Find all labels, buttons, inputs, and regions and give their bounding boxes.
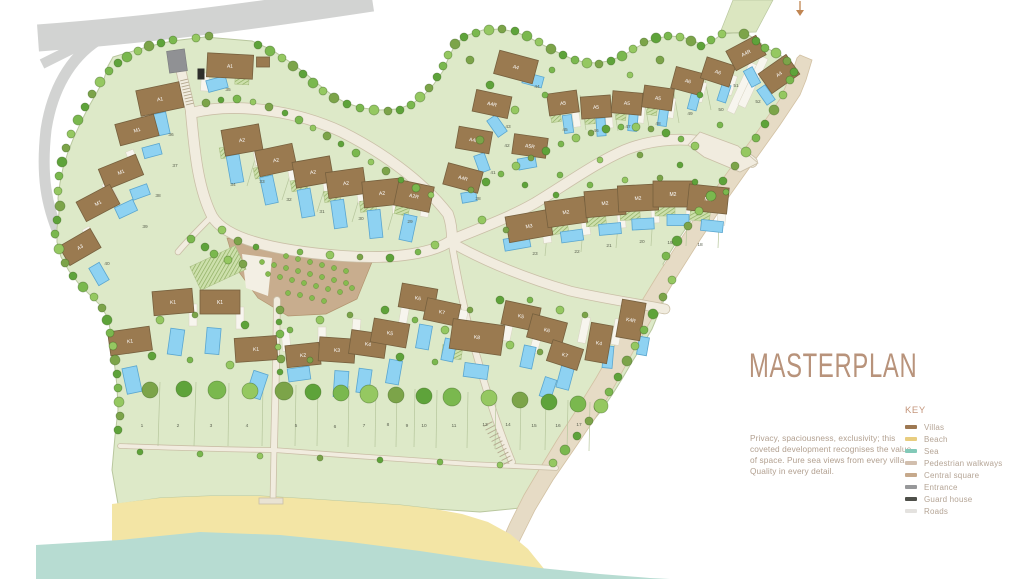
tree-icon [134,47,142,55]
tree-icon [686,36,696,46]
tree-icon [382,167,390,175]
tree-icon [51,230,59,238]
tree-icon [676,33,684,41]
guard-house [198,69,205,80]
tree-icon [560,445,570,455]
entrance-arrow [796,1,804,16]
villa-label: M2 [562,209,570,216]
lot-number: 11 [452,423,457,429]
orchard-tree-icon [265,271,270,276]
tree-icon [360,385,378,403]
tree-icon [428,192,434,198]
tree-icon [571,56,579,64]
tree-icon [202,99,210,107]
lot-number: 48 [655,121,661,127]
tree-icon [573,432,581,440]
villa-label: A1 [227,64,234,70]
lot-number: 44 [534,84,540,90]
tree-icon [443,388,461,406]
lot-number: 19 [667,240,673,246]
tree-icon [684,222,692,230]
tree-icon [265,103,273,111]
lot-number: 10 [421,423,427,429]
tree-icon [783,57,791,65]
tree-icon [415,249,421,255]
tree-icon [205,32,213,40]
villa-label: K8 [473,334,480,341]
tree-icon [433,73,441,81]
tree-icon [512,392,528,408]
tree-icon [522,182,528,188]
tree-icon [55,201,65,211]
pool [287,366,311,382]
tree-icon [54,187,62,195]
tree-icon [276,330,284,338]
lot-number: 14 [505,422,511,428]
tree-icon [478,216,486,224]
tree-icon [549,459,557,467]
tree-icon [648,309,658,319]
tree-icon [498,25,506,33]
tree-icon [242,383,258,399]
tree-icon [381,306,389,314]
tree-icon [786,76,794,84]
tree-icon [116,412,124,420]
tree-icon [441,326,449,334]
tree-icon [769,105,779,115]
tree-icon [239,260,247,268]
lot-number: 29 [407,219,413,225]
tree-icon [299,70,307,78]
tree-icon [444,51,452,59]
tree-icon [275,344,281,350]
tree-icon [241,321,249,329]
tree-icon [607,57,615,65]
tree-icon [73,115,83,125]
lot-number: 5 [295,423,298,429]
tree-icon [617,51,627,61]
tree-icon [497,462,503,468]
orchard-tree-icon [295,256,300,261]
tree-icon [481,390,497,406]
tree-icon [233,95,241,103]
villa-label: M2 [634,196,641,202]
tree-icon [717,122,723,128]
tree-icon [90,293,98,301]
lot-number: 16 [555,423,561,429]
tree-icon [275,382,293,400]
tree-icon [460,33,468,41]
orchard-tree-icon [337,289,342,294]
orchard-tree-icon [313,283,318,288]
tree-icon [695,207,703,215]
tree-icon [629,45,637,53]
tree-icon [176,381,192,397]
villa-outbuilding [257,57,270,67]
tree-icon [498,171,504,177]
tree-icon [597,157,603,163]
tree-icon [98,304,106,312]
orchard-tree-icon [343,268,348,273]
lot-number: 36 [168,132,174,138]
tree-icon [114,384,122,392]
tree-icon [486,81,494,89]
tree-icon [535,38,543,46]
tree-icon [662,129,670,137]
tree-icon [659,293,667,301]
key-items: VillasBeachSeaPedestrian walkwaysCentral… [905,421,1017,517]
tree-icon [396,106,404,114]
tree-icon [706,191,716,201]
tree-icon [169,36,177,44]
tree-icon [587,182,593,188]
tree-icon [771,48,781,58]
tree-icon [368,159,374,165]
tree-icon [81,103,89,111]
villa-label: A2 [379,190,386,197]
tree-icon [416,388,432,404]
legend-item: Central square [905,469,1017,481]
orchard-tree-icon [343,280,348,285]
lot-number: 23 [532,251,538,257]
tree-icon [622,356,632,366]
villa-label: A5 [624,101,631,108]
lot-number: 22 [574,249,580,255]
lot-number: 20 [639,239,645,245]
lot-number: 35 [225,87,231,93]
tree-icon [218,97,224,103]
lot-number: 47 [625,124,631,130]
orchard-tree-icon [271,262,276,267]
tree-icon [692,179,698,185]
pool [367,209,383,238]
tree-icon [752,134,760,142]
legend-item: Entrance [905,481,1017,493]
tree-icon [664,32,672,40]
orchard-tree-icon [325,286,330,291]
tree-icon [343,100,351,108]
tree-icon [224,256,232,264]
lot-number: 4 [246,423,249,429]
tree-icon [277,369,283,375]
tree-icon [450,39,460,49]
tree-icon [276,306,284,314]
lot-number: 51 [733,83,739,89]
tree-icon [114,426,122,434]
legend-label: Pedestrian walkways [924,459,1003,468]
lot-number: 17 [576,422,582,428]
arrow-head-icon [796,10,804,16]
legend-swatch-icon [905,449,917,453]
villa-label: K1 [127,338,134,345]
tree-icon [582,58,592,68]
orchard-tree-icon [295,268,300,273]
legend-swatch-icon [905,509,917,513]
tree-icon [317,455,323,461]
lot-number: 30 [358,216,364,222]
tree-icon [657,175,663,181]
tree-icon [69,272,77,280]
orchard-tree-icon [277,274,282,279]
tree-icon [95,77,105,87]
tree-icon [398,177,404,183]
legend-swatch-icon [905,485,917,489]
orchard-tree-icon [259,259,264,264]
legend-swatch-icon [905,461,917,465]
lot-number: 6 [334,424,337,430]
masterplan-map: A1A1M1M1M1A3A2A2A2A2A2A2RA4A4RA4RA5RA4RA… [0,0,1024,579]
lot-number: 50 [718,107,724,113]
tree-icon [779,91,787,99]
tree-icon [668,276,676,284]
lot-number: 49 [687,111,693,117]
tree-icon [476,136,484,144]
lot-number: 33 [259,179,265,185]
tree-icon [295,116,303,124]
pier [259,498,283,504]
intro-text: Privacy, spaciousness, exclusivity; this… [750,433,918,477]
legend-label: Sea [924,447,939,456]
tree-icon [307,357,313,363]
legend-label: Entrance [924,483,958,492]
tree-icon [197,451,203,457]
tree-icon [253,244,259,250]
villa-label: K5 [386,330,393,337]
tree-icon [537,349,543,355]
tree-icon [144,41,154,51]
orchard-tree-icon [331,265,336,270]
tree-icon [234,237,242,245]
legend-swatch-icon [905,437,917,441]
legend-item: Sea [905,445,1017,457]
lot-number: 18 [697,242,703,248]
tree-icon [114,397,124,407]
tree-icon [142,382,158,398]
lot-number: 52 [755,99,761,105]
tree-icon [192,34,200,42]
tree-icon [201,243,209,251]
tree-icon [761,44,769,52]
tree-icon [602,125,610,133]
tree-icon [437,459,443,465]
tree-icon [618,124,624,130]
lot-number: 1 [141,423,144,429]
entry-strip [720,0,773,33]
tree-icon [656,56,664,64]
legend-item: Beach [905,433,1017,445]
tree-icon [305,384,321,400]
tree-icon [484,25,494,35]
tree-icon [585,417,593,425]
tree-icon [326,251,334,259]
tree-icon [55,172,63,180]
tree-icon [157,39,165,47]
tree-icon [187,357,193,363]
tree-icon [651,33,661,43]
tree-icon [697,92,703,98]
orchard-tree-icon [349,285,354,290]
tree-icon [386,254,394,262]
tree-icon [627,72,633,78]
legend-swatch-icon [905,425,917,429]
tree-icon [347,312,353,318]
villa-label: K1 [217,300,223,306]
tree-icon [542,92,548,98]
tree-icon [640,326,648,334]
tree-icon [278,54,286,62]
tree-icon [677,162,683,168]
villa-label: A2 [239,137,246,144]
tree-icon [114,59,122,67]
tree-icon [338,141,344,147]
tree-icon [210,250,218,258]
tree-icon [356,104,364,112]
entry-road-strip [720,0,773,33]
lot-number: 32 [286,197,292,203]
tree-icon [594,399,608,413]
legend-label: Roads [924,507,948,516]
villa-label: A2 [310,169,317,176]
orchard-tree-icon [289,277,294,282]
tree-icon [432,359,438,365]
lot-number: 46 [593,128,599,134]
tree-icon [637,152,643,158]
tree-icon [106,329,114,337]
tree-icon [110,355,120,365]
tree-icon [254,41,262,49]
lot-number: 28 [475,196,481,202]
tree-icon [707,36,715,44]
tree-icon [466,56,474,64]
tree-icon [631,342,639,350]
villa-label: K4 [595,340,602,347]
villa-label: M2 [601,200,609,207]
tree-icon [67,130,75,138]
tree-icon [53,216,61,224]
villa-label: K1 [170,300,177,307]
lot-number: 31 [319,209,325,215]
tree-icon [549,67,555,73]
tree-icon [790,68,798,76]
tree-icon [468,187,474,193]
tree-icon [310,125,316,131]
villa-label: K6 [414,295,421,302]
lot-number: 45 [562,127,568,133]
tree-icon [582,312,588,318]
tree-icon [407,101,415,109]
villa-label: A2 [343,180,350,187]
tree-icon [752,37,760,45]
tree-icon [559,51,567,59]
tree-icon [333,385,349,401]
tree-icon [384,107,392,115]
tree-icon [557,172,563,178]
tree-icon [553,192,559,198]
pool [463,362,489,379]
tree-icon [250,99,256,105]
tree-icon [570,396,586,412]
tree-icon [496,296,504,304]
map-key: KEY VillasBeachSeaPedestrian walkwaysCen… [905,405,1017,517]
lot-number: 40 [104,261,110,267]
legend-label: Central square [924,471,979,480]
orchard-tree-icon [285,290,290,295]
lot-number: 42 [504,143,510,149]
legend-swatch-icon [905,497,917,501]
tree-icon [542,147,550,155]
tree-icon [506,341,514,349]
lot-number: 38 [155,193,161,199]
tree-icon [723,189,729,195]
tree-icon [282,110,288,116]
lot-number: 21 [606,243,612,249]
lot-number: 3 [210,423,213,429]
tree-icon [396,353,404,361]
tree-icon [691,142,699,150]
tree-icon [277,355,285,363]
villa-label: K4 [364,341,371,348]
orchard-tree-icon [321,298,326,303]
tree-icon [276,319,282,325]
tree-icon [605,388,613,396]
legend-item: Guard house [905,493,1017,505]
lot-number: 8 [387,422,390,428]
entrance-area [167,49,188,73]
lot-number: 2 [177,423,180,429]
tree-icon [148,352,156,360]
tree-icon [156,316,164,324]
legend-swatch-icon [905,473,917,477]
lot-number: 41 [490,170,496,176]
tree-icon [741,147,751,157]
lot-number: 9 [406,423,409,429]
orchard-tree-icon [283,265,288,270]
tree-icon [415,92,425,102]
tree-icon [329,93,339,103]
legend-label: Guard house [924,495,972,504]
pool [205,327,221,354]
tree-icon [319,87,327,95]
tree-icon [287,327,293,333]
tree-icon [122,52,132,62]
tree-icon [316,316,324,324]
lot-number: 43 [505,124,511,130]
orchard-tree-icon [319,262,324,267]
tree-icon [297,249,303,255]
tree-icon [78,282,88,292]
pool [700,219,723,232]
tree-icon [546,44,556,54]
tree-icon [105,67,113,75]
lot-number: 34 [230,182,236,188]
orchard-tree-icon [297,292,302,297]
tree-icon [482,178,490,186]
tree-icon [357,254,363,260]
tree-icon [512,162,520,170]
tree-icon [467,307,473,313]
info-panel: MASTERPLAN Privacy, spaciousness, exclus… [749,347,1019,386]
tree-icon [377,457,383,463]
beach-pier [259,498,283,504]
tree-icon [522,31,532,41]
lot-number: 7 [363,423,366,429]
tree-icon [137,449,143,455]
tree-icon [57,157,67,167]
tree-icon [511,27,519,35]
legend-label: Beach [924,435,948,444]
tree-icon [528,155,534,161]
villa-label: A5 [654,95,661,102]
